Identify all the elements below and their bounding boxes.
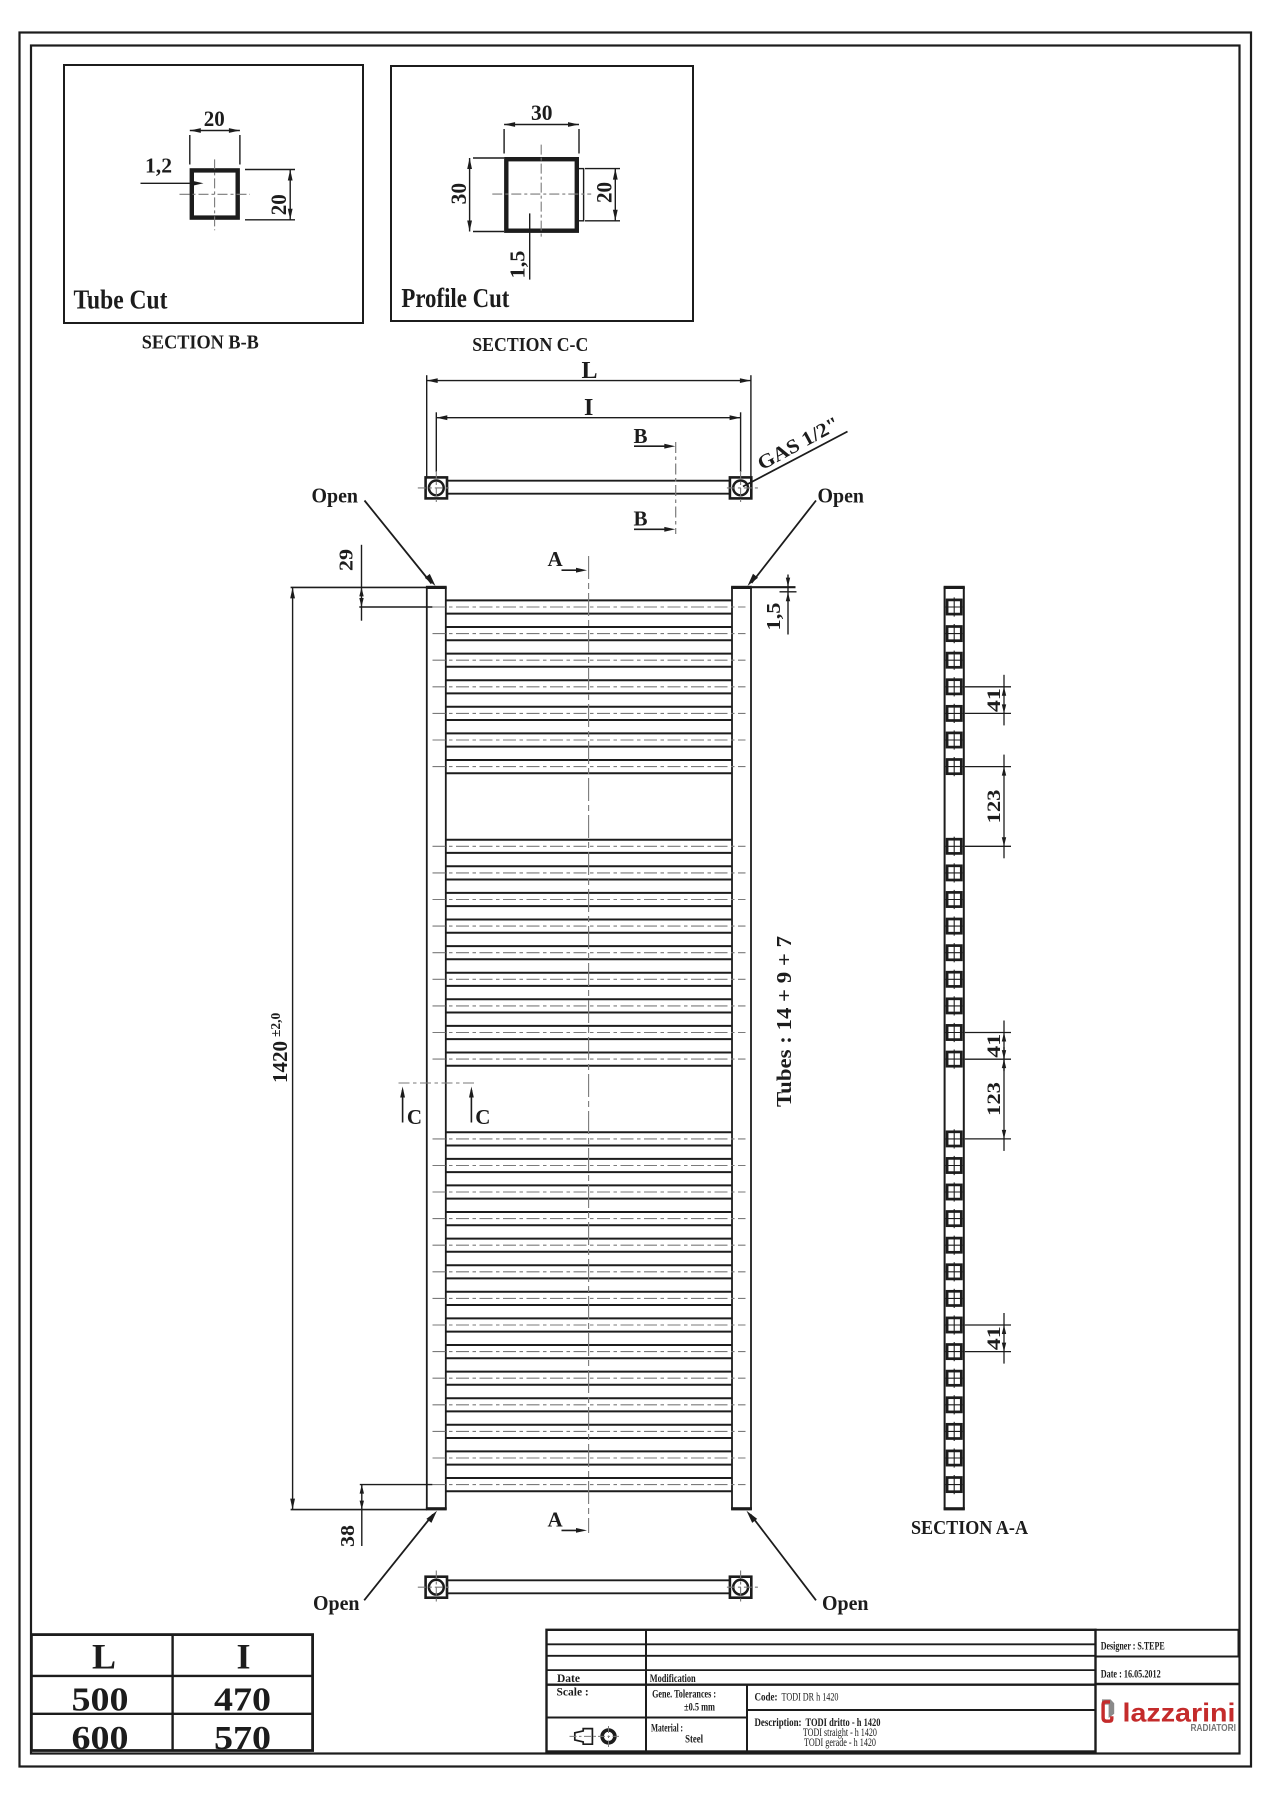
svg-text:Scale :: Scale : bbox=[557, 1687, 589, 1699]
svg-text:1,5: 1,5 bbox=[763, 603, 785, 631]
svg-text:A: A bbox=[548, 547, 564, 571]
svg-text:I: I bbox=[584, 395, 593, 421]
svg-text:B: B bbox=[634, 507, 648, 531]
svg-text:SECTION C-C: SECTION C-C bbox=[472, 334, 588, 356]
svg-text:Modification: Modification bbox=[650, 1673, 696, 1685]
svg-text:Open: Open bbox=[818, 484, 865, 508]
svg-text:±2,0: ±2,0 bbox=[268, 1012, 283, 1037]
svg-text:Open: Open bbox=[313, 1591, 360, 1615]
svg-text:RADIATORI: RADIATORI bbox=[1191, 1722, 1237, 1734]
svg-text:Tube Cut: Tube Cut bbox=[74, 285, 168, 315]
svg-text:30: 30 bbox=[446, 183, 471, 205]
svg-text:Tubes : 14 + 9 + 7: Tubes : 14 + 9 + 7 bbox=[772, 936, 796, 1107]
svg-text:123: 123 bbox=[984, 1082, 1005, 1116]
svg-text:Open: Open bbox=[822, 1591, 869, 1615]
svg-text:470: 470 bbox=[214, 1682, 271, 1719]
svg-text:Steel: Steel bbox=[685, 1733, 703, 1745]
svg-text:Open: Open bbox=[312, 484, 359, 508]
svg-text:I: I bbox=[237, 1637, 251, 1677]
svg-text:570: 570 bbox=[214, 1720, 271, 1757]
svg-text:SECTION B-B: SECTION B-B bbox=[142, 332, 259, 354]
svg-text:Code:: Code: bbox=[755, 1692, 778, 1704]
svg-text:1420: 1420 bbox=[268, 1041, 292, 1083]
svg-text:500: 500 bbox=[72, 1682, 129, 1719]
svg-text:41: 41 bbox=[984, 1326, 1005, 1350]
svg-text:1,2: 1,2 bbox=[145, 154, 172, 178]
svg-text:A: A bbox=[548, 1508, 564, 1532]
svg-text:38: 38 bbox=[337, 1525, 359, 1547]
svg-text:Profile Cut: Profile Cut bbox=[401, 283, 509, 313]
svg-text:20: 20 bbox=[266, 194, 291, 215]
svg-text:L: L bbox=[92, 1637, 116, 1677]
svg-text:TODI DR h 1420: TODI DR h 1420 bbox=[782, 1692, 839, 1704]
svg-text:TODI gerade - h 1420: TODI gerade - h 1420 bbox=[804, 1737, 876, 1749]
svg-text:30: 30 bbox=[531, 100, 553, 125]
svg-text:Date: Date bbox=[557, 1673, 580, 1685]
svg-text:29: 29 bbox=[336, 549, 358, 571]
svg-text:41: 41 bbox=[984, 1034, 1005, 1058]
svg-text:Gene. Tolerances :: Gene. Tolerances : bbox=[652, 1688, 716, 1700]
svg-text:20: 20 bbox=[592, 182, 617, 203]
svg-text:41: 41 bbox=[984, 688, 1005, 712]
svg-text:123: 123 bbox=[984, 790, 1005, 824]
svg-text:C: C bbox=[407, 1105, 422, 1129]
svg-text:Date : 16.05.2012: Date : 16.05.2012 bbox=[1101, 1669, 1161, 1681]
svg-text:1,5: 1,5 bbox=[506, 251, 530, 279]
svg-text:C: C bbox=[475, 1105, 490, 1129]
svg-text:Description:: Description: bbox=[755, 1717, 802, 1729]
svg-text:Designer : S.TEPE: Designer : S.TEPE bbox=[1101, 1641, 1165, 1653]
svg-text:L: L bbox=[582, 358, 598, 384]
svg-text:SECTION A-A: SECTION A-A bbox=[911, 1517, 1028, 1539]
svg-text:±0.5 mm: ±0.5 mm bbox=[684, 1702, 715, 1714]
svg-text:600: 600 bbox=[72, 1720, 129, 1757]
svg-text:Material :: Material : bbox=[651, 1722, 683, 1734]
svg-text:20: 20 bbox=[204, 106, 225, 131]
svg-text:B: B bbox=[634, 424, 648, 448]
